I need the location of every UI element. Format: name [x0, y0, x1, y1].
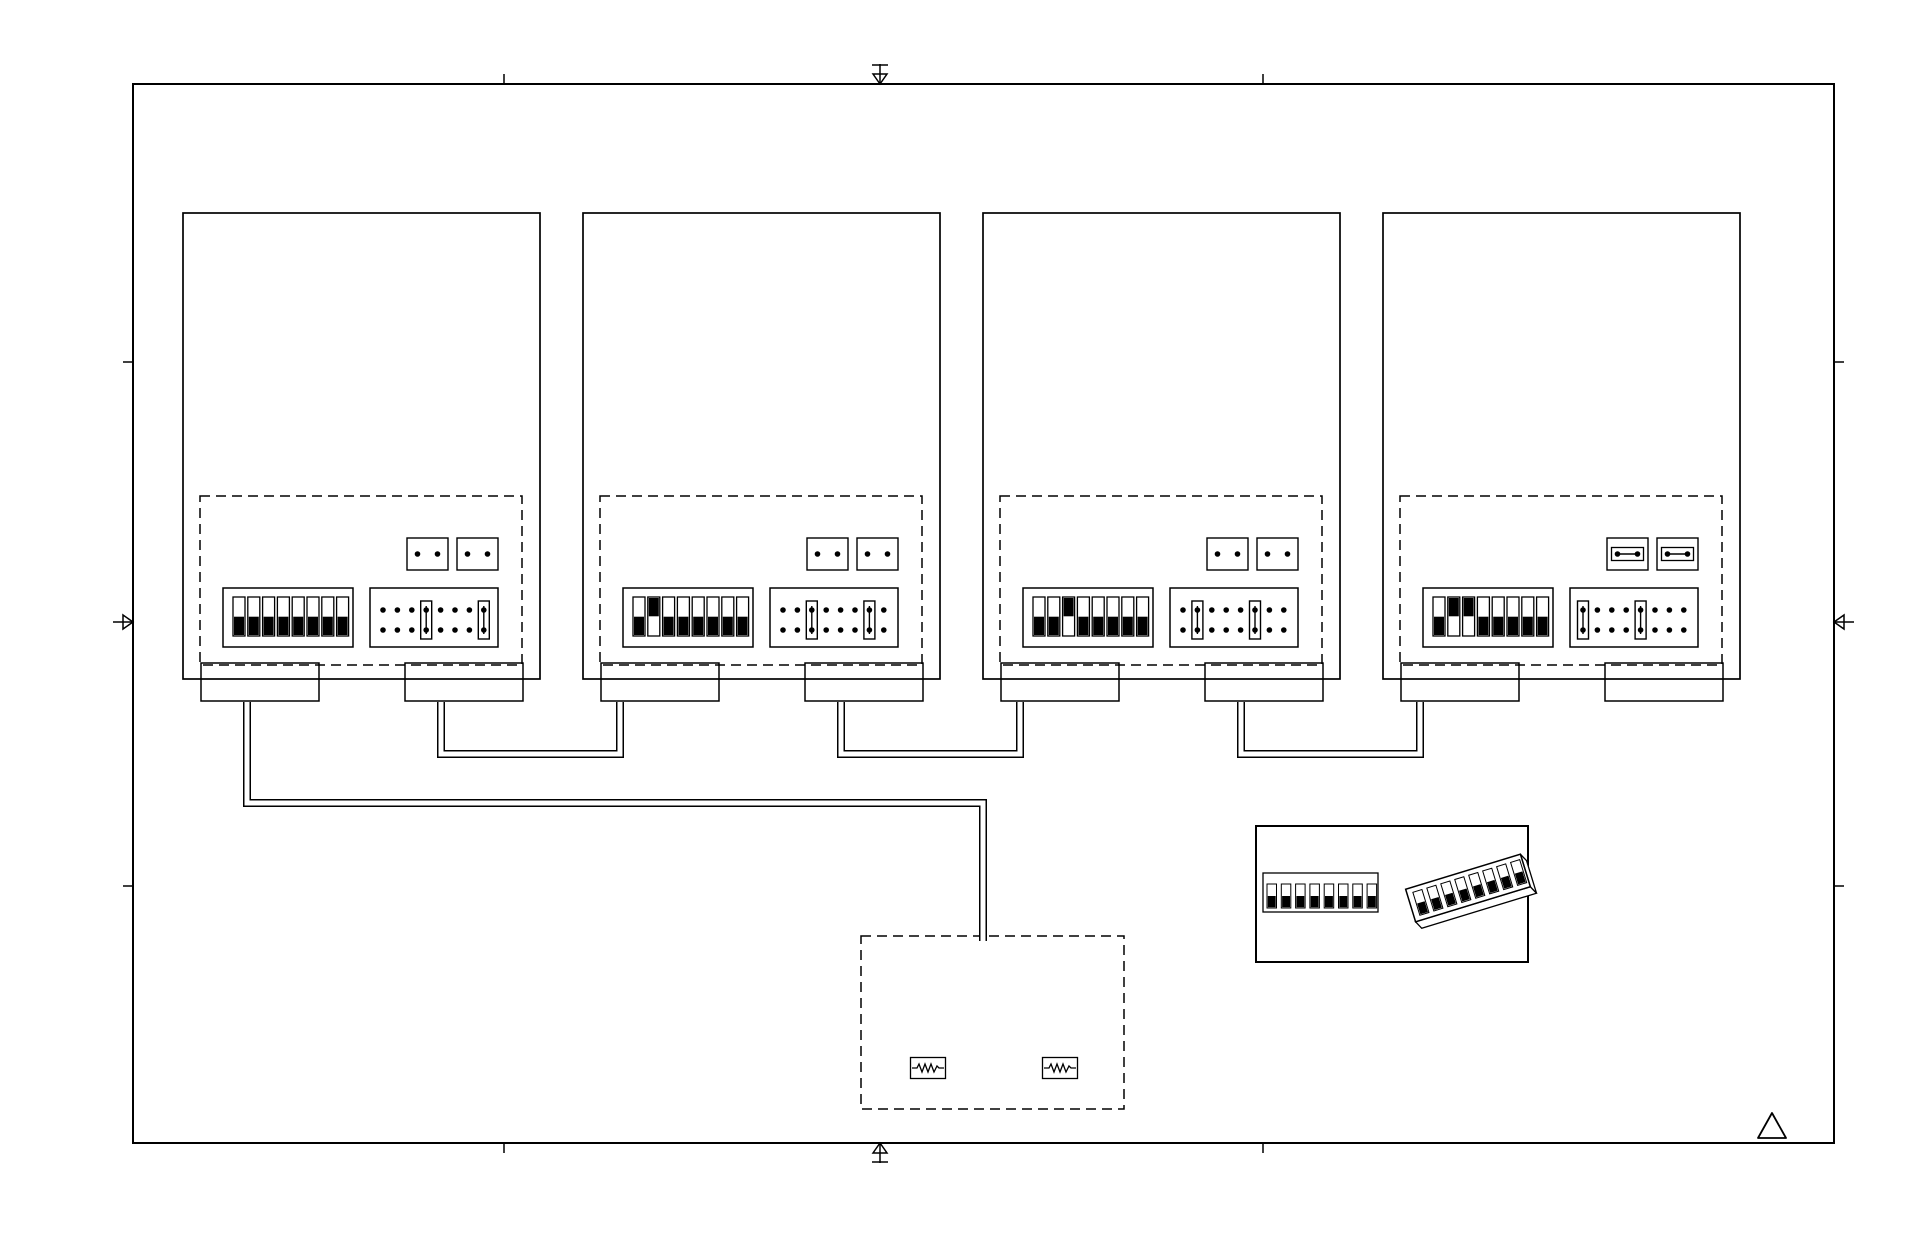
- dip-switch-8: [1137, 597, 1149, 636]
- pin-pair-box-2: [857, 538, 898, 570]
- center-mark-top: [872, 64, 888, 84]
- jumper-header-block: [770, 588, 898, 647]
- cable-unit2-to-unit3: [841, 702, 1020, 754]
- jumper-shunt-col-7: [864, 601, 875, 639]
- bottom-connector-tab-right: [1205, 663, 1323, 701]
- revision-triangle: [1758, 1113, 1786, 1138]
- center-mark-right: [1834, 615, 1854, 629]
- wiring-diagram: [0, 0, 1908, 1235]
- cable-unit1-to-unit2: [441, 702, 620, 754]
- dip-switch-5: [1092, 597, 1104, 636]
- dip-switch-detail-inset: [1256, 826, 1537, 962]
- center-mark-bottom: [872, 1143, 888, 1163]
- pin-pair-box-2: [1257, 538, 1298, 570]
- dip-switch-8: [337, 597, 349, 636]
- dip-switch-6: [1507, 597, 1519, 636]
- bottom-connector-tab-left: [601, 663, 719, 701]
- dip-switch-2: [248, 597, 260, 636]
- dip-switch-5: [692, 597, 704, 636]
- dip-switch-1: [233, 597, 245, 636]
- jumper-shunt-col-6: [1250, 601, 1261, 639]
- dip-switch-5: [1492, 597, 1504, 636]
- center-mark-left: [113, 615, 133, 629]
- dip-switch-7: [322, 597, 334, 636]
- pin-pair-box-2: [1657, 538, 1698, 570]
- cable-unit3-to-unit4: [1241, 702, 1420, 754]
- dip-switch-3: [1463, 597, 1475, 636]
- termination-resistor-1: [911, 1058, 946, 1079]
- dip-switch-4: [677, 597, 689, 636]
- device-unit-3: [983, 213, 1340, 701]
- pin-pair-box-2: [457, 538, 498, 570]
- dip-switch-1: [633, 597, 645, 636]
- jumper-shunt-col-5: [1635, 601, 1646, 639]
- dip-switch-6: [307, 597, 319, 636]
- dip-switch-7: [1122, 597, 1134, 636]
- pin-pair-box-1: [807, 538, 848, 570]
- dip-switch-4: [1077, 597, 1089, 636]
- dip-switch-8: [737, 597, 749, 636]
- jumper-shunt-col-1: [1578, 601, 1589, 639]
- cable-unit1-to-terminator-box: [247, 702, 983, 941]
- dip-switch-2: [648, 597, 660, 636]
- jumper-header-block: [1170, 588, 1298, 647]
- dip-switch-3: [663, 597, 675, 636]
- schematic-sheet: [0, 0, 1908, 1235]
- dip-switch-6: [1107, 597, 1119, 636]
- dip-switch-2: [1048, 597, 1060, 636]
- dip-switch-8: [1537, 597, 1549, 636]
- dip-switch-4: [1477, 597, 1489, 636]
- dip-switch-6: [707, 597, 719, 636]
- device-unit-1: [183, 213, 540, 701]
- device-unit-2: [583, 213, 940, 701]
- dip-switch-2: [1448, 597, 1460, 636]
- bottom-connector-tab-left: [1001, 663, 1119, 701]
- bottom-connector-tab-right: [1605, 663, 1723, 701]
- dip-switch-7: [1522, 597, 1534, 636]
- dip-switch-3: [263, 597, 275, 636]
- bottom-connector-tab-left: [201, 663, 319, 701]
- dip-switch-1: [1033, 597, 1045, 636]
- pin-pair-box-1: [407, 538, 448, 570]
- dip-switch-1: [1433, 597, 1445, 636]
- jumper-shunt-col-3: [806, 601, 817, 639]
- dip-switch-5: [292, 597, 304, 636]
- jumper-shunt-col-4: [421, 601, 432, 639]
- bottom-connector-tab-right: [405, 663, 523, 701]
- jumper-shunt-col-2: [1192, 601, 1203, 639]
- dip-switch-3: [1063, 597, 1075, 636]
- dip-switch-front-view: [1263, 873, 1378, 912]
- pin-pair-box-1: [1607, 538, 1648, 570]
- dip-switch-4: [277, 597, 289, 636]
- dip-switch-7: [722, 597, 734, 636]
- device-unit-4: [1383, 213, 1740, 701]
- pin-pair-box-1: [1207, 538, 1248, 570]
- bottom-connector-tab-left: [1401, 663, 1519, 701]
- termination-resistor-2: [1043, 1058, 1078, 1079]
- jumper-shunt-col-8: [478, 601, 489, 639]
- terminator-box: [861, 936, 1124, 1109]
- bottom-connector-tab-right: [805, 663, 923, 701]
- terminator-box-outline: [861, 936, 1124, 1109]
